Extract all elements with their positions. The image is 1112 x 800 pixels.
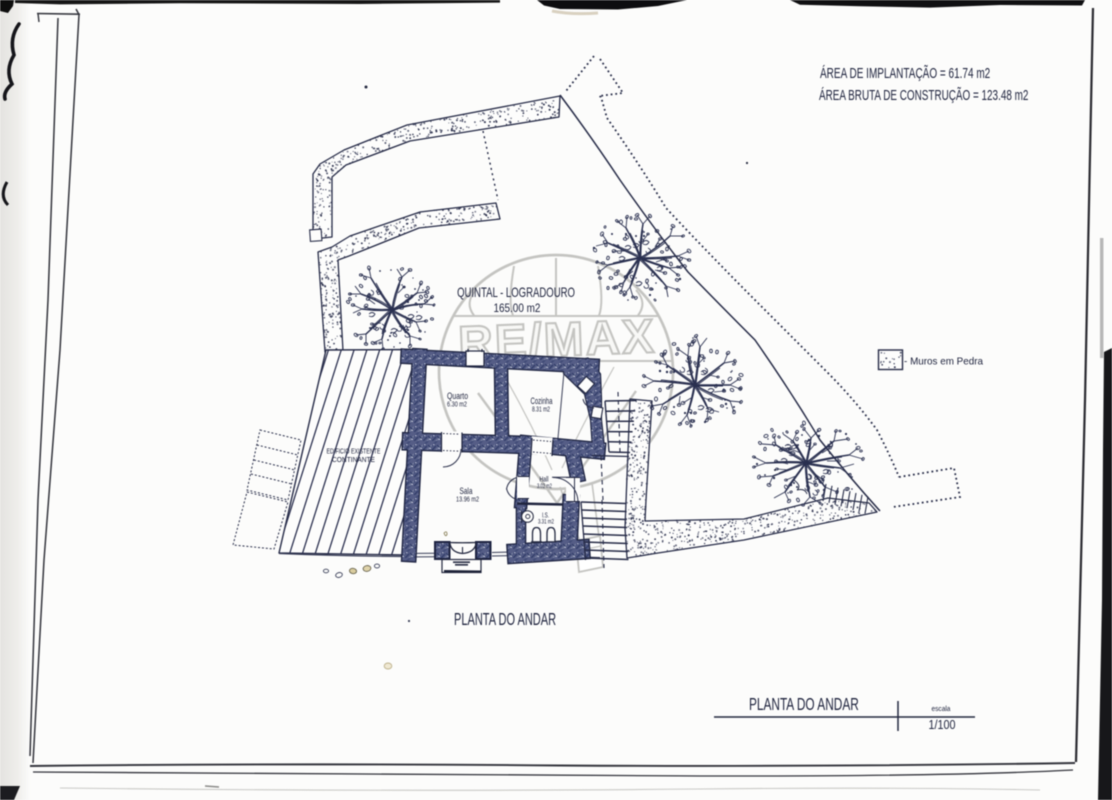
svg-text:escala: escala [931,706,950,713]
svg-text:ÁREA DE IMPLANTAÇÃO = 61.74: ÁREA DE IMPLANTAÇÃO = 61.74 m2 [820,64,990,81]
svg-text:6.30 m2: 6.30 m2 [447,401,467,409]
svg-text:PLANTA DO ANDAR: PLANTA DO ANDAR [749,695,859,715]
svg-text:ÁREA BRUTA DE CONSTRUÇÃO = 1: ÁREA BRUTA DE CONSTRUÇÃO = 123.48 m2 [819,86,1028,103]
svg-text:- Muros em Pedra: - Muros em Pedra [904,356,983,367]
svg-text:QUINTAL - LOGRADOURO: QUINTAL - LOGRADOURO [457,284,575,300]
svg-text:1/100: 1/100 [928,717,955,732]
svg-text:Quarto: Quarto [447,391,468,401]
svg-text:13.96 m2: 13.96 m2 [456,496,479,504]
svg-text:Sala: Sala [459,486,473,496]
svg-text:EDIFICIO EXISTENTE: EDIFICIO EXISTENTE [327,448,381,456]
svg-text:165.00 m2: 165.00 m2 [493,302,540,315]
svg-text:CONTINANTE: CONTINANTE [332,457,375,464]
svg-text:3.02 m2: 3.02 m2 [537,483,552,490]
svg-text:Cozinha: Cozinha [530,396,553,407]
svg-text:3.31 m2: 3.31 m2 [538,519,554,526]
svg-text:8.31 m2: 8.31 m2 [532,407,551,414]
svg-text:PLANTA DO ANDAR: PLANTA DO ANDAR [454,611,556,630]
